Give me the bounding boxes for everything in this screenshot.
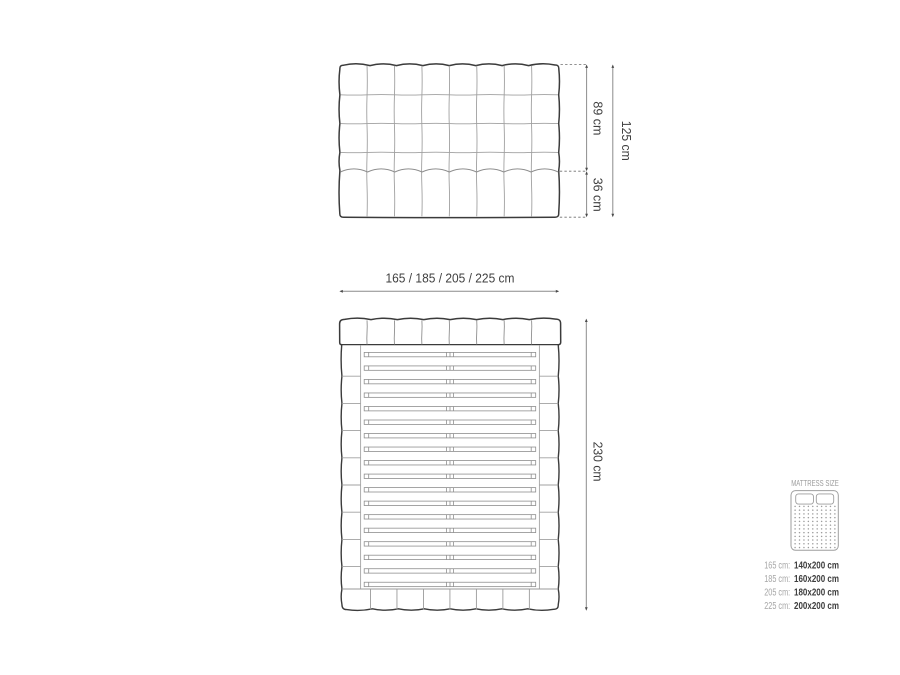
svg-text:230 cm: 230 cm xyxy=(591,442,605,482)
svg-text:89 cm: 89 cm xyxy=(591,101,605,135)
svg-text:180x200 cm: 180x200 cm xyxy=(794,588,839,599)
svg-text:205 cm:: 205 cm: xyxy=(764,588,790,599)
svg-text:MATTRESS SIZE: MATTRESS SIZE xyxy=(791,478,839,488)
svg-text:165 / 185 / 205 / 225 cm: 165 / 185 / 205 / 225 cm xyxy=(386,271,515,285)
svg-text:125 cm: 125 cm xyxy=(619,121,633,161)
svg-text:36 cm: 36 cm xyxy=(590,178,604,212)
svg-text:225 cm:: 225 cm: xyxy=(764,601,790,612)
svg-text:140x200 cm: 140x200 cm xyxy=(794,561,839,572)
svg-text:165 cm:: 165 cm: xyxy=(764,561,790,572)
svg-text:200x200 cm: 200x200 cm xyxy=(794,601,839,612)
svg-text:185 cm:: 185 cm: xyxy=(764,574,790,585)
svg-text:160x200 cm: 160x200 cm xyxy=(794,574,839,585)
